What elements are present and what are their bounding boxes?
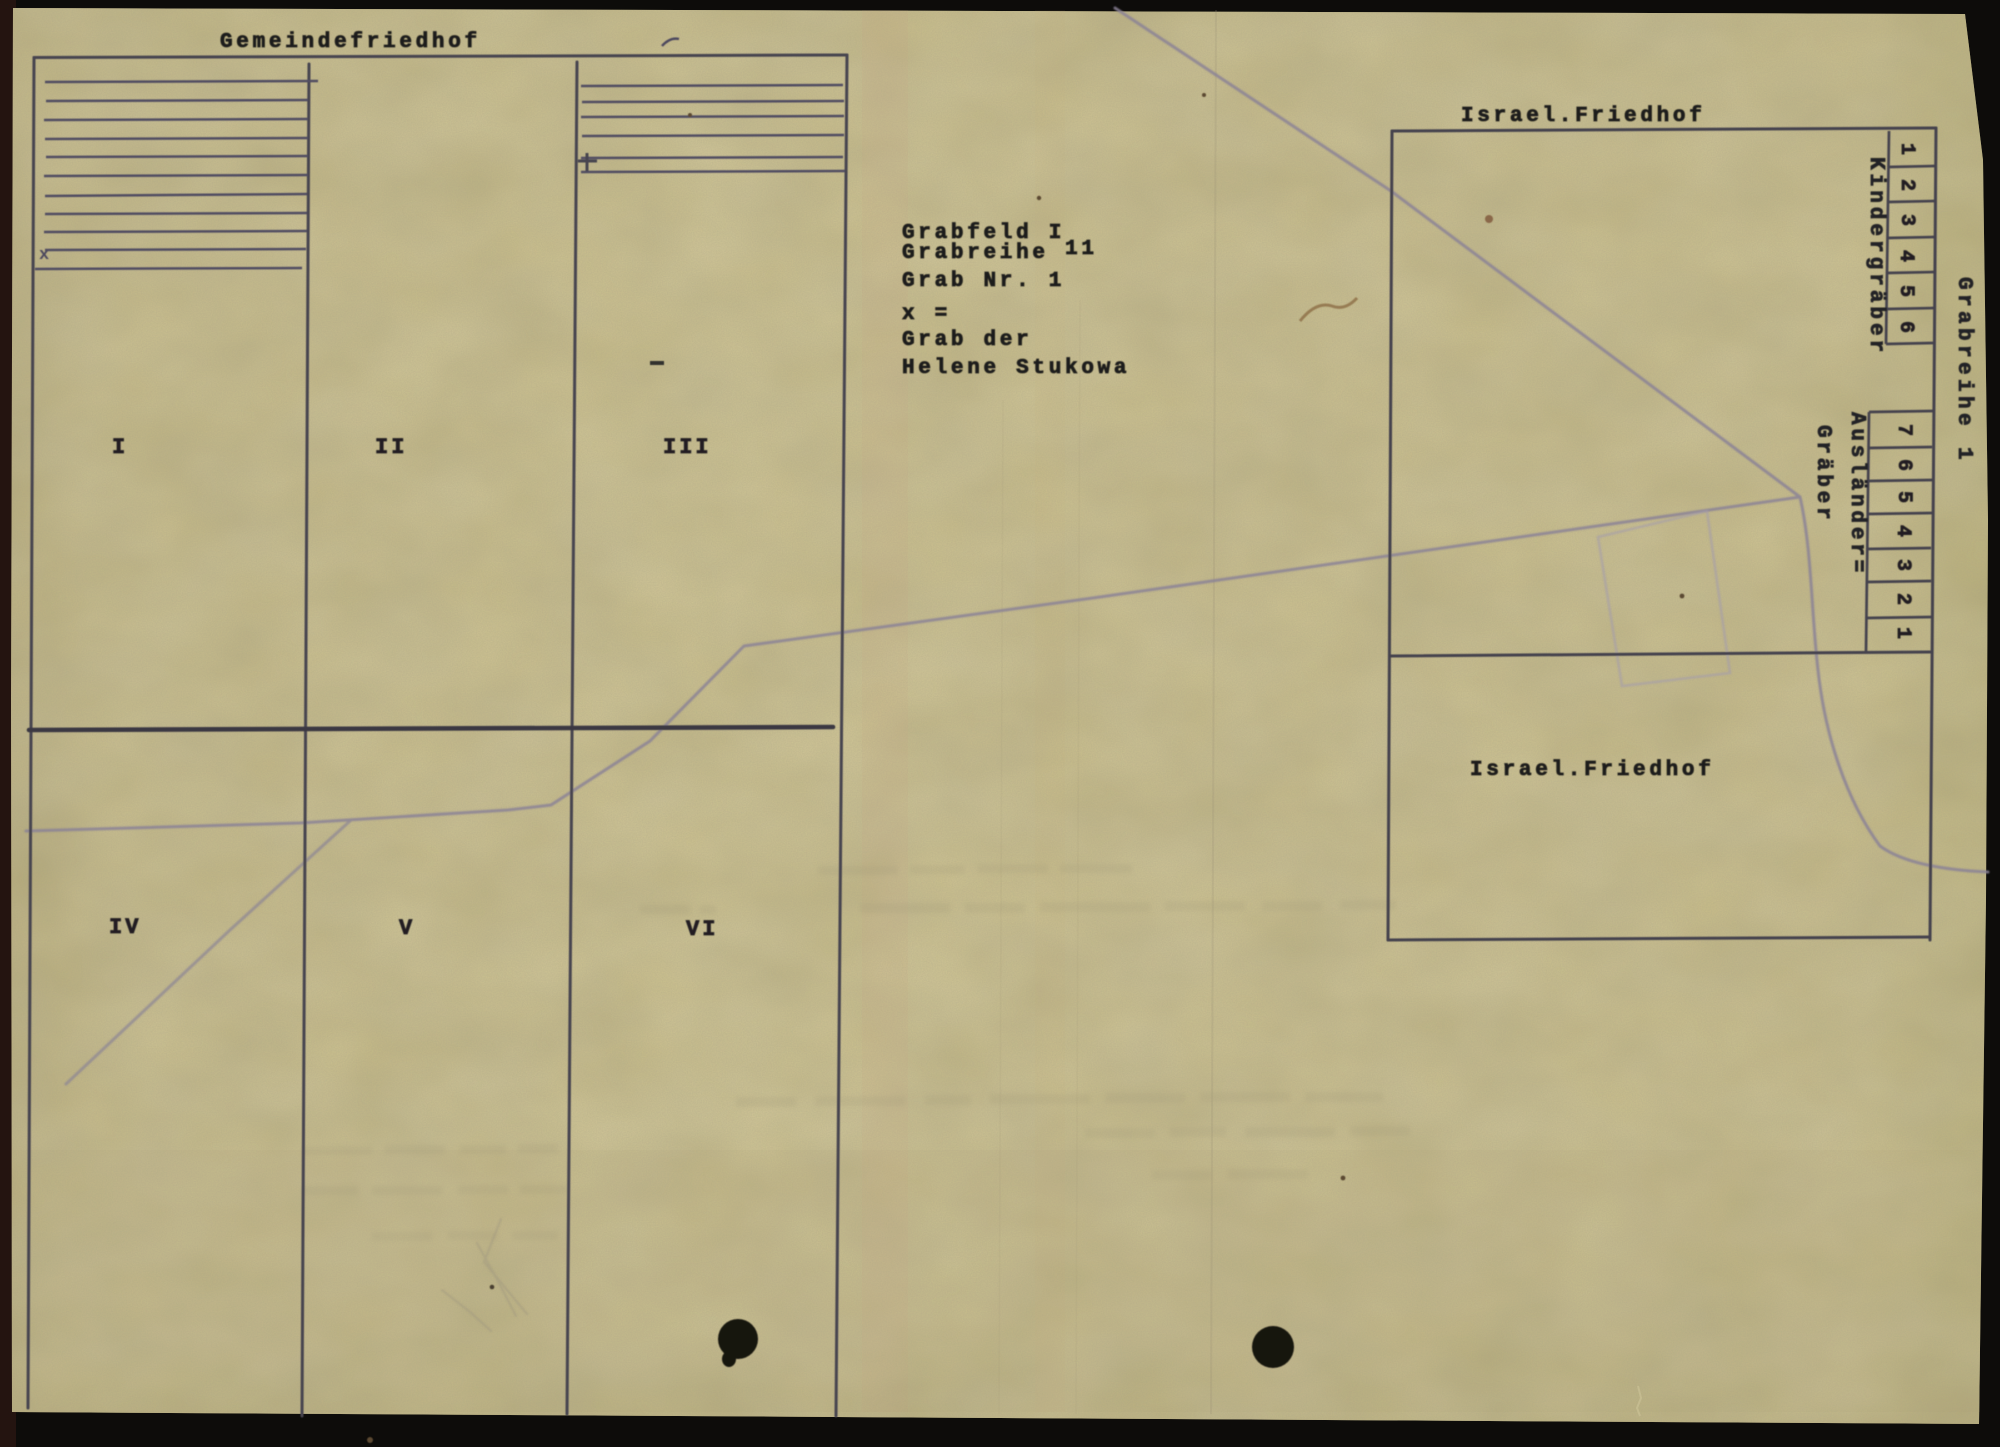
svg-text:Israel.Friedhof: Israel.Friedhof (1461, 105, 1706, 128)
svg-text:5: 5 (1892, 491, 1915, 503)
svg-text:Ausländer=: Ausländer= (1845, 412, 1868, 576)
svg-text:7: 7 (1892, 424, 1915, 436)
svg-text:Grab der: Grab der (902, 329, 1032, 352)
svg-text:2: 2 (1895, 179, 1918, 191)
svg-text:6: 6 (1892, 459, 1915, 471)
svg-text:x: x (39, 246, 49, 265)
svg-text:1: 1 (1895, 143, 1918, 155)
svg-text:I: I (112, 435, 128, 460)
svg-text:2: 2 (1891, 593, 1914, 605)
svg-text:Kindergräber: Kindergräber (1864, 157, 1887, 356)
svg-text:5: 5 (1894, 285, 1917, 297)
svg-text:V: V (399, 916, 415, 941)
svg-text:4: 4 (1894, 250, 1917, 262)
svg-text:II: II (375, 435, 407, 460)
svg-text:VI: VI (686, 917, 718, 942)
svg-text:3: 3 (1891, 559, 1914, 571)
svg-text:3: 3 (1895, 214, 1918, 226)
svg-text:Helene Stukowa: Helene Stukowa (902, 357, 1130, 380)
svg-text:x =: x = (902, 303, 951, 326)
svg-text:4: 4 (1891, 525, 1914, 537)
svg-text:Grabreihe 1: Grabreihe 1 (1952, 277, 1975, 464)
svg-text:1: 1 (1891, 627, 1914, 639)
svg-text:Grab Nr. 1: Grab Nr. 1 (902, 270, 1065, 293)
svg-text:Grabreihe 11: Grabreihe 11 (902, 238, 1098, 265)
svg-text:IV: IV (109, 915, 141, 940)
svg-text:III: III (663, 435, 712, 460)
svg-text:Gemeindefriedhof: Gemeindefriedhof (220, 31, 481, 54)
svg-text:Israel.Friedhof: Israel.Friedhof (1470, 759, 1715, 782)
svg-text:Gräber: Gräber (1811, 425, 1834, 523)
svg-text:6: 6 (1894, 321, 1917, 333)
